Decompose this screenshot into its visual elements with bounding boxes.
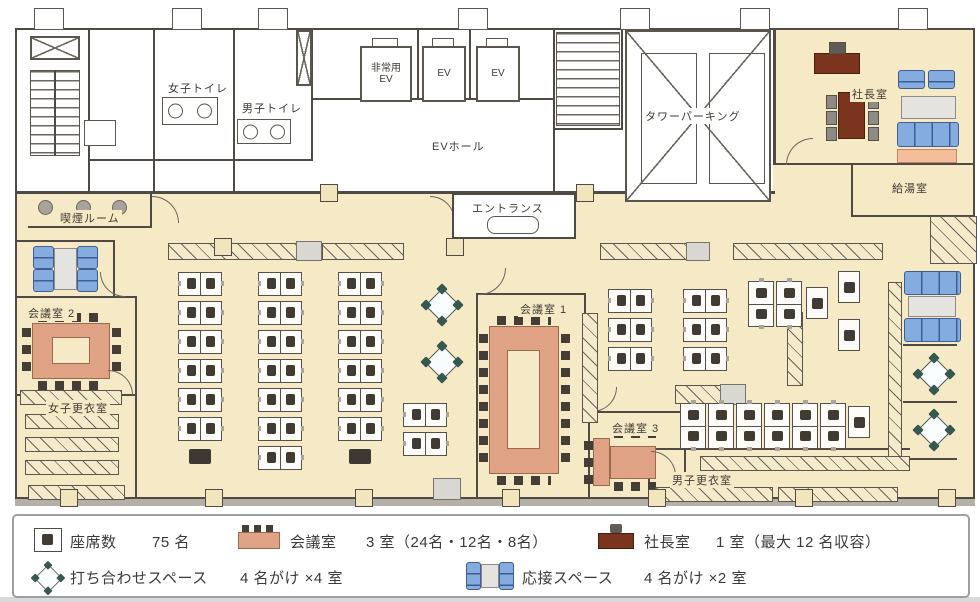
desk-pair: [403, 403, 447, 427]
storage-cabinet: [25, 460, 119, 475]
president-desk: [814, 53, 860, 74]
storage-cabinet: [582, 313, 598, 423]
emergency-elevator: 非常用EV: [360, 46, 412, 102]
legend-mtg-space-value: 4 名がけ ×4 室: [240, 567, 343, 588]
duct-hatch: [296, 30, 312, 86]
label-meeting-room-2: 会議室 2: [26, 305, 77, 321]
legend-reception-value: 4 名がけ ×2 室: [644, 567, 747, 588]
column-pier: [214, 238, 232, 256]
wall: [553, 30, 555, 193]
armchair: [928, 70, 955, 89]
reception-table: [908, 296, 956, 317]
storage-cabinet: [733, 243, 883, 260]
copier: [296, 241, 322, 261]
legend-mtg-space-label: 打ち合わせスペース: [70, 567, 208, 588]
desk-single: [838, 319, 860, 351]
desk-pair: [683, 318, 727, 342]
mtg-diamond-table: [916, 356, 952, 392]
reception-icon: [466, 562, 514, 588]
storage-cabinet: [25, 414, 119, 429]
reception-chair: [77, 269, 98, 292]
copier: [720, 384, 746, 405]
storage-cabinet: [600, 243, 690, 260]
desk-pair: [792, 403, 818, 449]
wall: [88, 159, 313, 161]
desk-pair: [338, 388, 382, 412]
wall: [135, 296, 137, 396]
label-presidents-office: 社長室: [850, 86, 890, 102]
label-tower-parking: タワーパーキング: [643, 108, 743, 124]
desk-pair: [338, 359, 382, 383]
desk-pair: [258, 272, 302, 296]
entrance-counter: [487, 216, 539, 234]
wall: [903, 344, 957, 346]
column-pier: [446, 238, 464, 256]
desk-pair: [178, 330, 222, 354]
desk-pair: [258, 417, 302, 441]
shaft-stub: [258, 8, 288, 30]
elevator-1-label: EV: [437, 68, 450, 80]
wall: [851, 165, 853, 217]
label-entrance: エントランス: [470, 200, 546, 216]
meeting-table-icon: [238, 532, 280, 549]
label-meeting-room-3: 会議室 3: [610, 420, 661, 436]
copier: [433, 478, 461, 500]
wall: [88, 30, 90, 191]
storage-cabinet: [25, 437, 119, 452]
legend-meeting-value: 3 室（24名・12名・8名）: [366, 531, 548, 552]
wall: [469, 30, 471, 98]
desk-pair: [338, 330, 382, 354]
column-pier: [795, 489, 813, 507]
desk-pair: [608, 347, 652, 371]
desk-single: [838, 271, 860, 303]
president-desk-icon: [598, 533, 634, 549]
desk-pair: [764, 403, 790, 449]
shaft-stub: [172, 8, 202, 30]
label-mens-toilet: 男子トイレ: [240, 100, 304, 116]
desk-pair: [776, 281, 802, 327]
legend-meeting-label: 会議室: [290, 531, 337, 552]
label-smoking-room: 喫煙ルーム: [58, 210, 122, 226]
president-chair: [829, 42, 846, 54]
storage-cabinet: [930, 216, 977, 264]
desk-pair: [680, 403, 706, 449]
storage-cabinet: [675, 385, 723, 404]
wall: [135, 394, 137, 506]
storage-cabinet: [168, 243, 298, 260]
wall: [233, 30, 235, 191]
shaft-stub: [620, 8, 650, 30]
desk-pair: [178, 359, 222, 383]
mtg-diamond-table: [916, 412, 952, 448]
label-mens-locker: 男子更衣室: [670, 472, 734, 488]
reception-sofa: [904, 318, 961, 342]
stairs-core: [556, 32, 620, 126]
printer: [189, 449, 211, 464]
desk-pair: [683, 347, 727, 371]
meeting-room-3-table: [610, 446, 656, 479]
column-pier: [205, 489, 223, 507]
wall: [153, 30, 155, 191]
column-pier: [320, 184, 338, 202]
desk-pair: [338, 301, 382, 325]
reception-table: [54, 248, 77, 290]
desk-single: [806, 287, 828, 319]
desk-pair: [178, 272, 222, 296]
wall: [15, 240, 115, 242]
desk-pair: [258, 330, 302, 354]
mtg-diamond-table: [424, 287, 460, 323]
stool: [38, 200, 53, 215]
column-pier: [938, 489, 956, 507]
mtg-diamond-table: [424, 344, 460, 380]
storage-cabinet: [655, 487, 773, 502]
wall: [28, 226, 152, 228]
desk-pair: [338, 272, 382, 296]
side-table: [84, 120, 116, 146]
desk-pair: [736, 403, 762, 449]
desk-pair: [338, 417, 382, 441]
column-pier: [648, 489, 666, 507]
shaft-stub: [898, 8, 928, 30]
wall: [476, 293, 478, 499]
shaft-stub: [458, 8, 488, 30]
label-ev-hall: EVホール: [430, 138, 487, 154]
column-pier: [355, 489, 373, 507]
desk-pair: [178, 301, 222, 325]
coffee-table: [901, 96, 956, 119]
desk-pair: [820, 403, 846, 449]
desk-pair: [608, 289, 652, 313]
label-womens-locker: 女子更衣室: [46, 400, 110, 416]
shaft-stub: [34, 8, 64, 30]
desk-pair: [708, 403, 734, 449]
wall: [553, 128, 623, 130]
floor-plan: 非常用EV EV EV: [0, 0, 980, 602]
wall: [621, 30, 623, 130]
mtg-space-icon: [34, 564, 63, 593]
elevator-1: EV: [422, 46, 466, 102]
label-meeting-room-1: 会議室 1: [518, 301, 569, 317]
desk-single: [848, 406, 870, 438]
desk-pair: [178, 417, 222, 441]
desk-pair: [258, 359, 302, 383]
column-pier: [502, 489, 520, 507]
storage-cabinet: [888, 282, 902, 460]
wall: [903, 401, 957, 403]
womens-toilet-sink: [162, 97, 218, 125]
wall: [476, 293, 586, 295]
desk-pair: [748, 281, 774, 327]
elevator-2-label: EV: [491, 68, 504, 80]
wall: [417, 30, 419, 98]
wall: [588, 411, 686, 413]
column-pier: [60, 489, 78, 507]
desk-pair: [608, 318, 652, 342]
legend-president-value: 1 室（最大 12 名収容）: [716, 531, 881, 552]
reception-sofa: [904, 271, 961, 295]
legend: 座席数 75 名 会議室 3 室（24名・12名・8名） 社長室 1 室（最大 …: [12, 514, 970, 598]
shaft-stub: [740, 8, 770, 30]
label-kitchenette: 給湯室: [890, 180, 930, 196]
column-pier: [576, 184, 594, 202]
printer: [349, 449, 371, 464]
desk-pair: [683, 289, 727, 313]
cabinet: [897, 149, 957, 163]
legend-seats-value: 75 名: [152, 531, 190, 552]
reception-chair: [33, 269, 54, 292]
storage-cabinet: [322, 243, 404, 260]
mens-toilet-sink: [237, 119, 291, 144]
storage-cabinet: [700, 456, 910, 471]
desk-pair: [258, 301, 302, 325]
emergency-elevator-label: 非常用EV: [369, 63, 403, 86]
shaft-hatch: [30, 36, 80, 60]
seat-icon: [34, 528, 62, 552]
wall: [773, 30, 776, 165]
elevator-2: EV: [476, 46, 520, 102]
desk-pair: [258, 388, 302, 412]
desk-pair: [178, 388, 222, 412]
desk-pair: [258, 446, 302, 470]
legend-president-label: 社長室: [644, 531, 691, 552]
legend-seats-label: 座席数: [70, 531, 117, 552]
wall: [903, 458, 957, 460]
sofa: [897, 122, 959, 147]
desk-pair: [403, 432, 447, 456]
reception-chair: [77, 246, 98, 269]
copier: [686, 242, 710, 261]
reception-chair: [33, 246, 54, 269]
armchair: [898, 70, 925, 89]
label-womens-toilet: 女子トイレ: [166, 80, 230, 96]
meeting-room-3-table: [593, 438, 610, 486]
legend-reception-label: 応接スペース: [522, 567, 613, 588]
